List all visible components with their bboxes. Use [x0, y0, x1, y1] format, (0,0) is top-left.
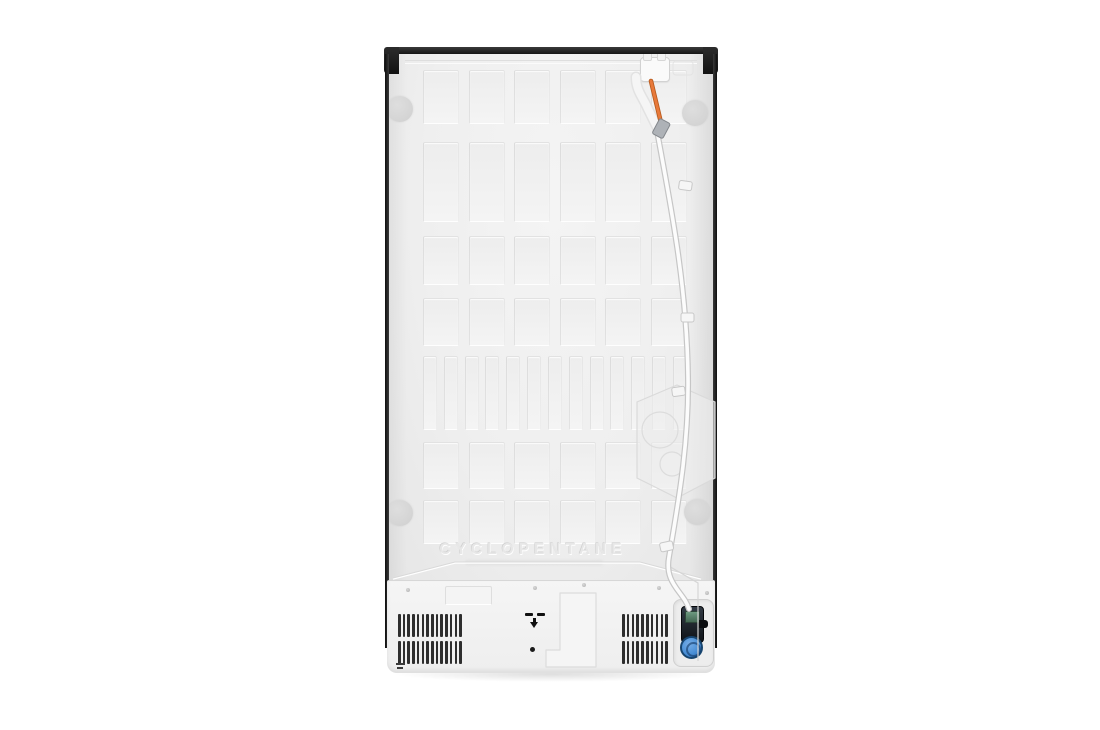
slot-row — [423, 298, 687, 344]
embossed-slot — [631, 356, 645, 430]
vent-slat — [436, 614, 439, 637]
embossed-slot — [605, 70, 641, 124]
embossed-slot — [560, 298, 596, 346]
product-photo: CYCLOPENTANE — [0, 0, 1100, 730]
vent-slat — [450, 641, 453, 664]
mounting-mark — [537, 613, 545, 616]
vent-slat — [632, 641, 635, 664]
grille-row — [622, 614, 668, 637]
vent-slat — [417, 641, 420, 664]
embossed-slot — [560, 442, 596, 489]
vent-slat — [651, 641, 654, 664]
vent-slat — [450, 614, 453, 637]
grille-row — [398, 641, 462, 664]
embossed-slot — [605, 142, 641, 222]
left-edge-trim — [385, 54, 389, 648]
vent-slat — [445, 614, 448, 637]
embossed-slot — [605, 236, 641, 285]
spacer-pad-bottom-right — [684, 499, 710, 525]
vent-slat — [412, 614, 415, 637]
vent-slat — [403, 614, 406, 637]
valve-recess — [673, 599, 714, 667]
embossed-slot — [423, 442, 459, 489]
vent-slat — [412, 641, 415, 664]
embossed-slot — [651, 500, 687, 544]
embossed-slot-grid — [423, 47, 687, 567]
spacer-pad-top-right — [682, 100, 708, 126]
vent-slat — [407, 614, 410, 637]
vent-slat — [440, 614, 443, 637]
embossed-slot — [423, 298, 459, 346]
slot-row — [423, 236, 687, 283]
vent-slat — [622, 641, 625, 664]
ground-symbol-icon — [396, 663, 405, 665]
vent-slat — [636, 641, 639, 664]
embossed-slot — [514, 500, 550, 544]
vent-slat — [622, 614, 625, 637]
embossed-slot — [485, 356, 499, 430]
embossed-slot — [514, 142, 550, 222]
embossed-slot — [651, 298, 687, 346]
embossed-slot — [423, 142, 459, 222]
spacer-pad-top-left — [387, 96, 413, 122]
machine-compartment-cover — [387, 580, 715, 673]
vent-slat — [431, 614, 434, 637]
vent-slat — [661, 641, 664, 664]
fine-print-mark — [553, 661, 566, 665]
vent-slat — [455, 641, 458, 664]
slot-row — [423, 356, 687, 428]
screw — [705, 591, 709, 595]
embossed-slot — [469, 298, 505, 346]
vent-grille-left — [398, 614, 462, 664]
embossed-slot — [469, 500, 505, 544]
embossed-slot — [506, 356, 520, 430]
embossed-slot — [651, 142, 687, 222]
embossed-slot — [590, 356, 604, 430]
embossed-slot — [560, 70, 596, 124]
embossed-slot — [423, 356, 437, 430]
embossed-slot — [514, 442, 550, 489]
vent-slat — [646, 614, 649, 637]
screw — [657, 586, 661, 590]
page: { "scene": { "subject": "Rear view of a … — [0, 0, 1100, 730]
vent-slat — [431, 641, 434, 664]
refrigerator-back: CYCLOPENTANE — [385, 47, 717, 675]
vent-slat — [636, 614, 639, 637]
vent-slat — [641, 641, 644, 664]
vent-slat — [403, 641, 406, 664]
embossed-slot — [514, 236, 550, 285]
cover-emboss-rect — [445, 586, 492, 605]
embossed-slot — [423, 236, 459, 285]
embossed-slot — [560, 236, 596, 285]
embossed-slot — [605, 500, 641, 544]
embossed-slot — [560, 500, 596, 544]
vent-slat — [665, 641, 668, 664]
right-edge-trim — [713, 54, 717, 648]
vent-slat — [398, 614, 401, 637]
embossed-slot — [569, 356, 583, 430]
top-trim — [391, 47, 711, 54]
vent-slat — [661, 614, 664, 637]
screw — [406, 588, 410, 592]
embossed-slot — [423, 500, 459, 544]
vent-slat — [646, 641, 649, 664]
vent-slat — [455, 614, 458, 637]
embossed-slot — [514, 70, 550, 124]
vent-slat — [632, 614, 635, 637]
embossed-slot — [652, 356, 666, 430]
slot-row — [423, 442, 687, 487]
embossed-fine-print — [465, 560, 603, 565]
embossed-slot — [605, 298, 641, 346]
vent-slat — [398, 641, 401, 664]
vent-slat — [426, 641, 429, 664]
vent-slat — [436, 641, 439, 664]
vent-slat — [422, 614, 425, 637]
grille-row — [398, 614, 462, 637]
embossed-slot — [673, 356, 687, 430]
embossed-slot — [548, 356, 562, 430]
screw — [582, 583, 586, 587]
embossed-slot — [469, 236, 505, 285]
cyclopentane-embossed-text: CYCLOPENTANE — [421, 541, 645, 559]
vent-slat — [445, 641, 448, 664]
vent-slat — [422, 641, 425, 664]
vent-slat — [459, 614, 462, 637]
embossed-slot — [444, 356, 458, 430]
grille-row — [622, 641, 668, 664]
slot-row — [423, 142, 687, 220]
vent-slat — [459, 641, 462, 664]
vent-slat — [656, 641, 659, 664]
embossed-slot — [465, 356, 479, 430]
vent-grille-right — [622, 614, 668, 664]
ground-symbol-icon — [397, 667, 403, 669]
screw — [533, 586, 537, 590]
embossed-slot — [469, 142, 505, 222]
embossed-slot — [651, 236, 687, 285]
embossed-slot — [469, 442, 505, 489]
embossed-slot — [514, 298, 550, 346]
embossed-slot — [605, 442, 641, 489]
embossed-slot — [651, 442, 687, 489]
vent-slat — [627, 614, 630, 637]
vent-slat — [440, 641, 443, 664]
vent-slat — [627, 641, 630, 664]
screw-hole — [530, 647, 535, 652]
embossed-slot — [469, 70, 505, 124]
valve-cap-blue — [680, 636, 703, 659]
valve-fitting — [699, 620, 708, 628]
embossed-slot — [610, 356, 624, 430]
vent-slat — [426, 614, 429, 637]
slot-row — [423, 500, 687, 542]
mounting-arrow-icon — [530, 622, 538, 628]
vent-slat — [665, 614, 668, 637]
vent-slat — [641, 614, 644, 637]
embossed-slot — [423, 70, 459, 124]
vent-slat — [656, 614, 659, 637]
spacer-pad-bottom-left — [387, 500, 413, 526]
mounting-mark — [525, 613, 533, 616]
valve-label — [685, 611, 700, 623]
embossed-slot — [527, 356, 541, 430]
vent-slat — [417, 614, 420, 637]
embossed-slot — [560, 142, 596, 222]
vent-slat — [407, 641, 410, 664]
vent-slat — [651, 614, 654, 637]
